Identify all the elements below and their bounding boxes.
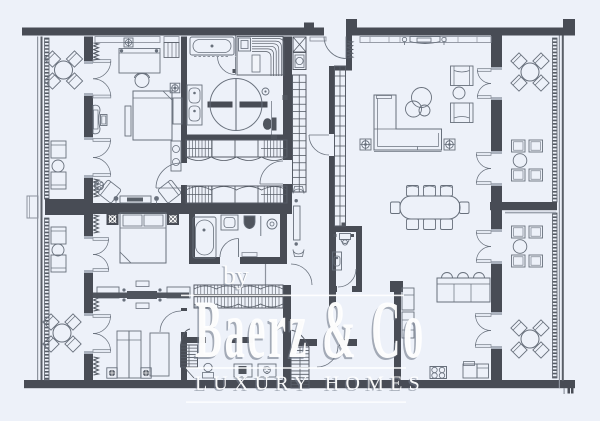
svg-text:Baerz & Co: Baerz & Co bbox=[195, 285, 426, 377]
svg-text:LUXURY HOMES: LUXURY HOMES bbox=[195, 373, 426, 395]
